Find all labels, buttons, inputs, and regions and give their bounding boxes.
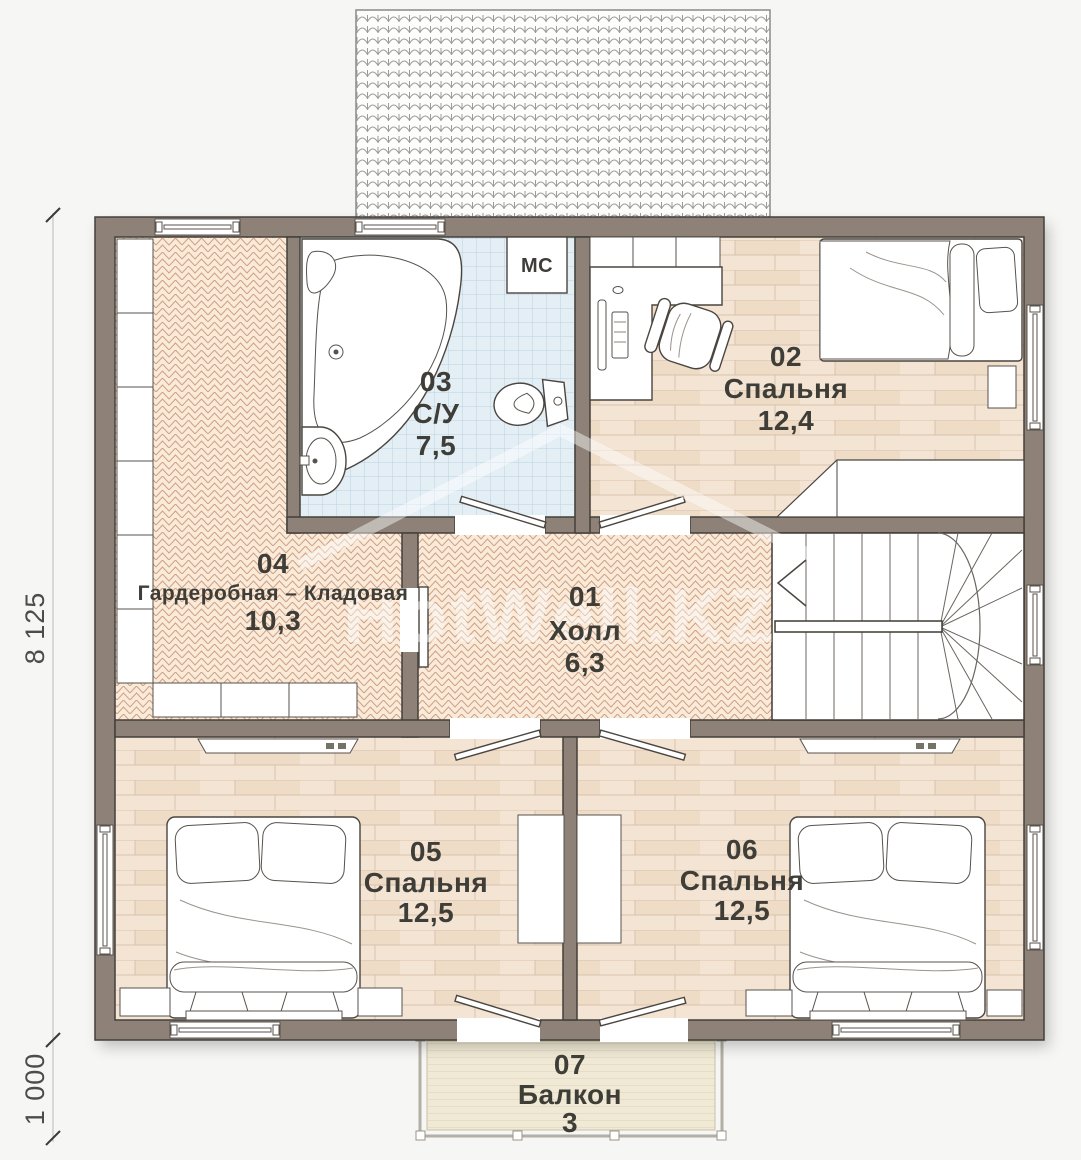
window-icon (170, 1022, 280, 1038)
window-icon (832, 1022, 960, 1038)
room-number-label: 07 (554, 1049, 586, 1080)
washing-machine-label: МС (521, 255, 553, 277)
tv-console-icon-05 (198, 739, 358, 753)
room-name-label: С/У (413, 398, 460, 429)
bed-icon-bedroom-06 (790, 817, 985, 1020)
roof (356, 10, 770, 218)
dimension-lines: 8 125 1 000 (20, 208, 60, 1145)
dimension-total-depth: 8 125 (20, 592, 50, 665)
window-icon (355, 219, 445, 235)
bed-icon-bedroom-05 (167, 817, 360, 1020)
washing-machine-icon: МС (507, 237, 567, 293)
room-number-label: 02 (770, 341, 802, 372)
room-number-label: 05 (410, 836, 442, 867)
nightstand-icon (120, 988, 170, 1016)
room-area-label: 7,5 (416, 430, 456, 461)
stair-rail (775, 621, 942, 632)
nightstand-icon (987, 990, 1022, 1016)
room-area-label: 12,5 (714, 895, 771, 926)
window-icon (1027, 825, 1043, 950)
room-name-label: Балкон (518, 1079, 622, 1110)
tv-console-icon-06 (800, 739, 960, 753)
room-number-label: 03 (420, 366, 452, 397)
closet-icon (518, 815, 564, 943)
room-area-label: 10,3 (245, 605, 302, 636)
room-area-label: 3 (562, 1107, 578, 1138)
sink-icon (300, 427, 346, 495)
room-area-label: 6,3 (565, 647, 605, 678)
nightstand-icon (358, 988, 402, 1016)
room-number-label: 01 (569, 581, 601, 612)
room-name-label: Гардеробная – Кладовая (138, 582, 409, 605)
room-name-label: Холл (549, 615, 621, 646)
room-name-label: Спальня (680, 865, 804, 896)
room-number-label: 04 (257, 548, 289, 579)
room-name-label: Спальня (724, 373, 848, 404)
floor-plan-canvas: 8 125 1 000 (0, 0, 1081, 1160)
window-icon (1027, 585, 1043, 665)
nightstand-icon (746, 990, 792, 1016)
room-name-label: Спальня (364, 867, 488, 898)
room-number-label: 06 (726, 834, 758, 865)
closet-icon (577, 815, 621, 943)
dimension-balcony-depth: 1 000 (20, 1053, 50, 1126)
room-area-label: 12,4 (758, 405, 815, 436)
window-icon (155, 219, 240, 235)
window-icon (1027, 305, 1043, 430)
window-icon (97, 825, 113, 955)
room-area-label: 12,5 (398, 897, 455, 928)
